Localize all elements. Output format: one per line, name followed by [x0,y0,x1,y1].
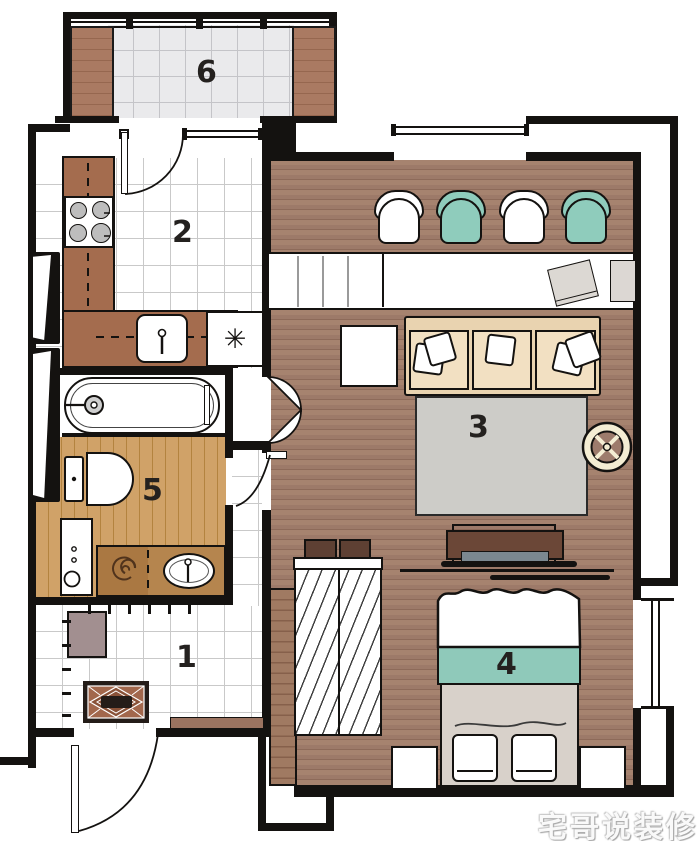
entry-door-leaf [71,745,79,833]
burner [70,202,87,219]
outer-wall-right-bottom [666,708,674,797]
bathtub-drain-panel [204,385,210,425]
coat-hook [188,605,191,614]
glazing-post [196,18,203,29]
room-label-hallway: 1 [176,643,197,673]
burner [69,224,87,242]
basin [163,553,215,589]
nightstand-right [579,746,626,790]
dining-chair [565,198,607,244]
bedroom-window-glazing [658,598,660,709]
throw-pillow [484,333,516,366]
desk-divider [347,256,349,307]
coat-hook [62,668,71,671]
corridor-door-leaf [266,451,287,459]
desk-divider [297,256,299,307]
pillow-fold-line [516,770,552,772]
desk-divider-strong [382,254,384,307]
desk-divider [322,256,324,307]
glazing-post [260,18,267,29]
window-jamb [391,124,396,136]
vestibule-wall-right [258,728,266,831]
kitchen-window-glazing [185,136,260,138]
media-shelf-bar [441,561,577,567]
coat-hook [62,692,71,695]
coat-hook [108,605,111,614]
watermark: 宅哥说装修 [508,804,698,841]
tall-cabinet-strip [269,588,297,786]
coat-hook [62,714,71,717]
wardrobe-divider [338,570,340,734]
side-table [340,325,398,387]
vestibule-wall-step [326,793,334,831]
shaft-block [31,252,60,344]
dining-chair [378,198,420,244]
planter-left [70,26,114,122]
closet-niche-wall [232,441,265,450]
bathtub-inner [70,383,214,428]
rug [415,396,588,516]
vestibule-wall-bottom [258,823,334,831]
door-swing-arc [79,734,158,831]
toilet-tank [64,456,84,502]
coat-hook [148,605,151,614]
bathtub [64,377,220,434]
media-shelf-bar [490,575,610,580]
outer-wall-right [670,116,678,585]
coat-hook [88,605,91,614]
living-window-glazing [394,133,526,135]
kitchen-sink [136,314,188,363]
hall-wall-bottom-left [28,728,74,737]
room-label-balcony: 6 [196,58,217,88]
washing-machine [60,518,93,596]
shaft-panel [33,351,51,498]
shoe-cabinet [67,611,107,658]
room-label-bathroom: 5 [142,476,163,506]
refrigerator-icon: ✳ [224,326,247,353]
kitchen-window-glazing [185,130,260,132]
desk-chair [610,260,636,302]
basin-inner [169,559,209,583]
room-label-kitchen: 2 [172,218,193,248]
window-jamb [524,124,529,136]
chair-seat [565,198,607,244]
corridor-living-wall-a [262,368,271,377]
shaft-block [31,348,60,502]
bed-pillow [452,734,498,782]
shaft-panel [33,255,51,340]
bathroom-wall-right-b [225,505,233,605]
outer-wall-top-left-link [28,124,70,132]
living-wall-top-left [262,152,394,161]
chair-seat [503,198,545,244]
dining-chair [440,198,482,244]
planter-right [292,26,336,122]
coat-hook [62,620,71,623]
chair-seat [378,198,420,244]
balcony-door-leaf [121,132,128,194]
refrigerator: ✳ [206,311,264,367]
window-jamb [182,128,187,140]
corridor-floor [232,450,262,606]
balcony-wall-bottom-left [55,116,119,123]
vanity-left-section [98,547,148,595]
pillow-fold-line [457,770,493,772]
coat-hook [128,605,131,614]
hall-wall-bottom-right [156,728,271,737]
room-label-bedroom: 4 [496,650,517,680]
floor-plan: 6 [0,0,700,841]
stove [64,196,114,248]
coat-hook [168,605,171,614]
bed-pillow [511,734,557,782]
bedroom-wall-right-upper [633,578,641,600]
nightstand-left [391,746,438,790]
burner [91,223,111,243]
bathroom-wall-bottom [36,597,232,605]
room-label-living: 3 [468,413,489,443]
bedroom-wall-right-lower [633,708,641,797]
chair-seat [440,198,482,244]
dining-chair [503,198,545,244]
burner [92,201,110,219]
sliding-wardrobe [294,568,382,736]
glazing-post [126,18,133,29]
living-wall-right [633,152,641,586]
outer-wall-top-right [526,116,678,124]
media-shelf-line [400,569,614,572]
outer-wall-bottom-stub [0,757,28,765]
living-wall-top-right [526,152,641,161]
coat-hook [62,644,71,647]
bathroom-wall-top [36,368,232,375]
vanity-dashed-divider [147,550,149,592]
bedroom-window-glazing [651,598,653,709]
living-window-glazing [394,126,526,128]
bench [170,717,264,729]
